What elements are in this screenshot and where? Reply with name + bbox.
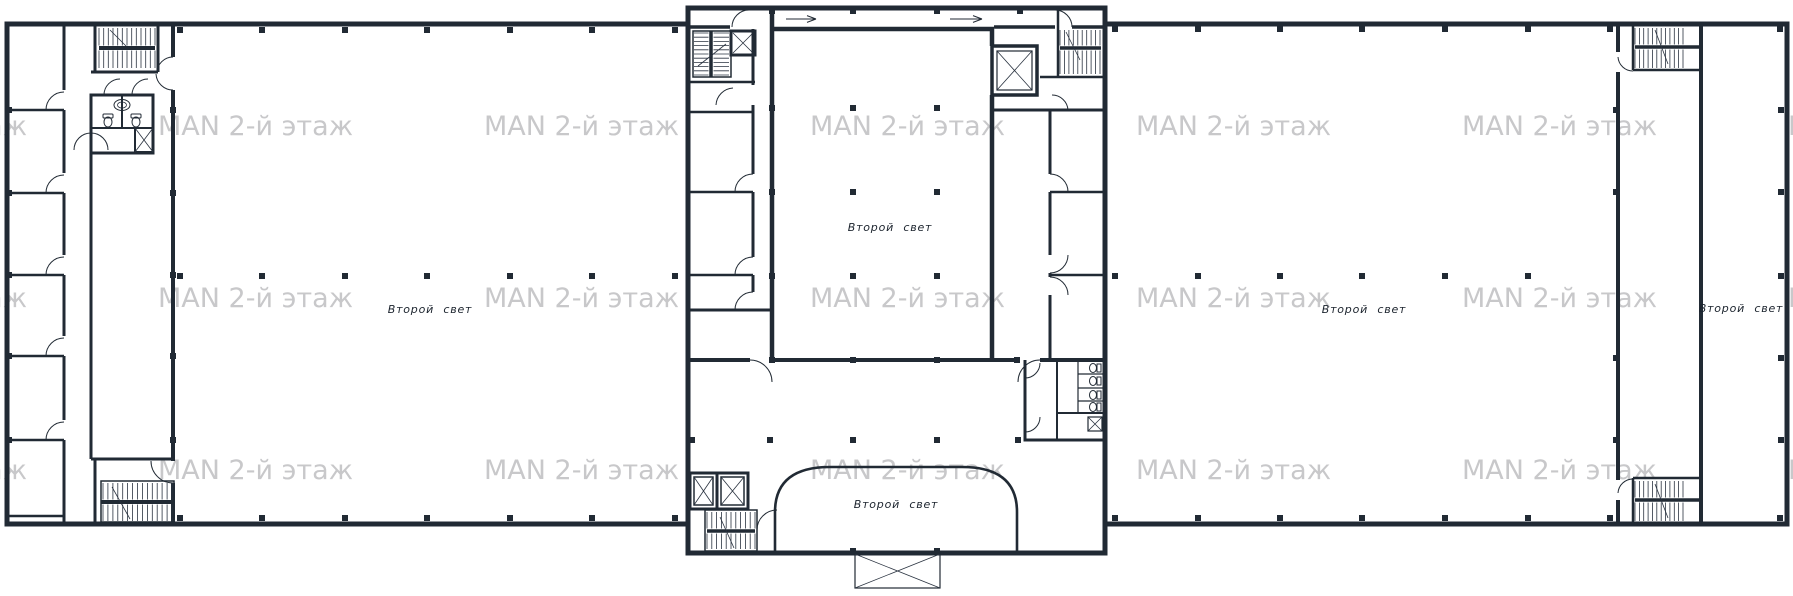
column-dot: [424, 27, 430, 33]
elevators-central-bottom: [688, 473, 748, 509]
column-dot: [769, 8, 775, 14]
watermark-text: MAN 2-й этаж: [158, 283, 353, 314]
watermark-text: MAN 2-й этаж: [0, 455, 27, 486]
column-dot: [1525, 26, 1531, 32]
watermark-text: MAN 2-й этаж: [1462, 111, 1657, 142]
double-height-label-right-wing: Второй свет: [1322, 303, 1407, 316]
column-dot: [1112, 515, 1118, 521]
double-height-label-right-strip: Второй свет: [1699, 302, 1784, 315]
column-dot: [589, 27, 595, 33]
column-dot: [259, 273, 265, 279]
column-dot: [934, 273, 940, 279]
watermark-layer: MAN 2-й этажMAN 2-й этажMAN 2-й этажMAN …: [0, 111, 1793, 486]
column-dot: [1195, 273, 1201, 279]
column-dot: [6, 437, 12, 443]
column-dot: [1778, 107, 1784, 113]
column-dot: [769, 189, 775, 195]
column-dot: [1277, 515, 1283, 521]
elevator-central-top-right: [992, 46, 1037, 95]
double-height-label-left-wing: Второй свет: [388, 303, 473, 316]
column-dot: [177, 273, 183, 279]
column-dot: [934, 548, 940, 554]
watermark-text: MAN 2-й этаж: [810, 111, 1005, 142]
column-dot: [934, 357, 940, 363]
column-dot: [1359, 515, 1365, 521]
column-dot: [1778, 437, 1784, 443]
floor-plan-canvas: MAN 2-й этажMAN 2-й этажMAN 2-й этажMAN …: [0, 0, 1793, 596]
column-dot: [342, 515, 348, 521]
column-dot: [1112, 26, 1118, 32]
column-dot: [1359, 26, 1365, 32]
watermark-text: MAN 2-й этаж: [1136, 455, 1331, 486]
canopy: [855, 554, 940, 588]
column-dot: [1442, 26, 1448, 32]
column-dot: [689, 437, 695, 443]
column-dot: [1613, 437, 1619, 443]
column-dot: [1778, 355, 1784, 361]
watermark-text: MAN 2-й этаж: [0, 283, 27, 314]
column-dot: [934, 189, 940, 195]
west-corridor-wall: [91, 95, 173, 459]
column-dot: [1014, 357, 1020, 363]
column-dot: [170, 437, 176, 443]
column-dot: [507, 515, 513, 521]
watermark-text: MAN 2-й этаж: [484, 283, 679, 314]
staircase-right-top: [1633, 24, 1701, 70]
watermark-text: MAN 2-й этаж: [158, 455, 353, 486]
column-dot: [769, 357, 775, 363]
watermark-text: MAN 2-й этаж: [158, 111, 353, 142]
column-dot: [589, 515, 595, 521]
column-dot: [177, 27, 183, 33]
column-dot: [342, 27, 348, 33]
column-dot: [6, 107, 12, 113]
column-dot: [259, 27, 265, 33]
column-dot: [1613, 107, 1619, 113]
column-dot: [170, 353, 176, 359]
column-dot: [672, 27, 678, 33]
column-dot: [1195, 515, 1201, 521]
column-dot: [850, 357, 856, 363]
column-dot: [1442, 515, 1448, 521]
column-dot: [769, 273, 775, 279]
double-height-label-atrium: Второй свет: [848, 221, 933, 234]
column-dot: [850, 437, 856, 443]
column-dot: [170, 190, 176, 196]
column-dot: [769, 105, 775, 111]
column-dot: [1277, 26, 1283, 32]
watermark-text: MAN 2-й этаж: [1462, 455, 1657, 486]
double-height-label-arch: Второй свет: [854, 498, 939, 511]
column-dot: [424, 273, 430, 279]
watermark-text: MAN 2-й этаж: [810, 455, 1005, 486]
column-dot: [850, 273, 856, 279]
column-dot: [1778, 273, 1784, 279]
column-dot: [170, 272, 176, 278]
column-dot: [589, 273, 595, 279]
column-dot: [672, 273, 678, 279]
column-dot: [1613, 355, 1619, 361]
watermark-text: MAN 2-й этаж: [0, 111, 27, 142]
column-dot: [1613, 189, 1619, 195]
direction-arrows: [786, 16, 982, 23]
column-dot: [934, 8, 940, 14]
column-dot: [259, 515, 265, 521]
column-dot: [6, 190, 12, 196]
central-right-room-dividers: [1050, 192, 1105, 275]
column-dot: [1277, 273, 1283, 279]
column-dot: [1777, 515, 1783, 521]
watermark-text: MAN 2-й этаж: [810, 283, 1005, 314]
column-dot: [1195, 26, 1201, 32]
column-dot: [507, 273, 513, 279]
column-dot: [1525, 515, 1531, 521]
column-dot: [424, 515, 430, 521]
column-dot: [170, 107, 176, 113]
column-dot: [850, 189, 856, 195]
column-dot: [850, 548, 856, 554]
column-dot: [850, 8, 856, 14]
elevator-central-top-left: [731, 31, 755, 55]
column-dot: [1525, 273, 1531, 279]
column-dot: [1359, 273, 1365, 279]
central-door-arcs: [716, 10, 1072, 530]
column-dot: [1442, 273, 1448, 279]
column-dot: [672, 515, 678, 521]
column-dot: [1607, 26, 1613, 32]
column-dot: [6, 353, 12, 359]
bathroom-left: [91, 95, 153, 153]
column-dot: [1778, 189, 1784, 195]
staircase-left-top: [91, 24, 158, 72]
watermark-text: MAN 2-й этаж: [484, 111, 679, 142]
column-dot: [1607, 515, 1613, 521]
column-dot: [1112, 273, 1118, 279]
watermark-text: MAN 2-й этаж: [1462, 283, 1657, 314]
column-dot: [1777, 26, 1783, 32]
column-dot: [850, 105, 856, 111]
column-dot: [1017, 8, 1023, 14]
watermark-text: MAN 2-й этаж: [484, 455, 679, 486]
floor-plan: MAN 2-й этажMAN 2-й этажMAN 2-й этажMAN …: [0, 0, 1793, 596]
column-dot: [507, 27, 513, 33]
watermark-text: MAN 2-й этаж: [1136, 283, 1331, 314]
column-dot: [342, 273, 348, 279]
column-dot: [6, 272, 12, 278]
column-dot: [767, 437, 773, 443]
column-dot: [177, 515, 183, 521]
column-dot: [934, 105, 940, 111]
central-left-lobby-walls: [688, 82, 755, 275]
column-dot: [934, 437, 940, 443]
column-dot: [1015, 437, 1021, 443]
watermark-text: MAN 2-й этаж: [1136, 111, 1331, 142]
